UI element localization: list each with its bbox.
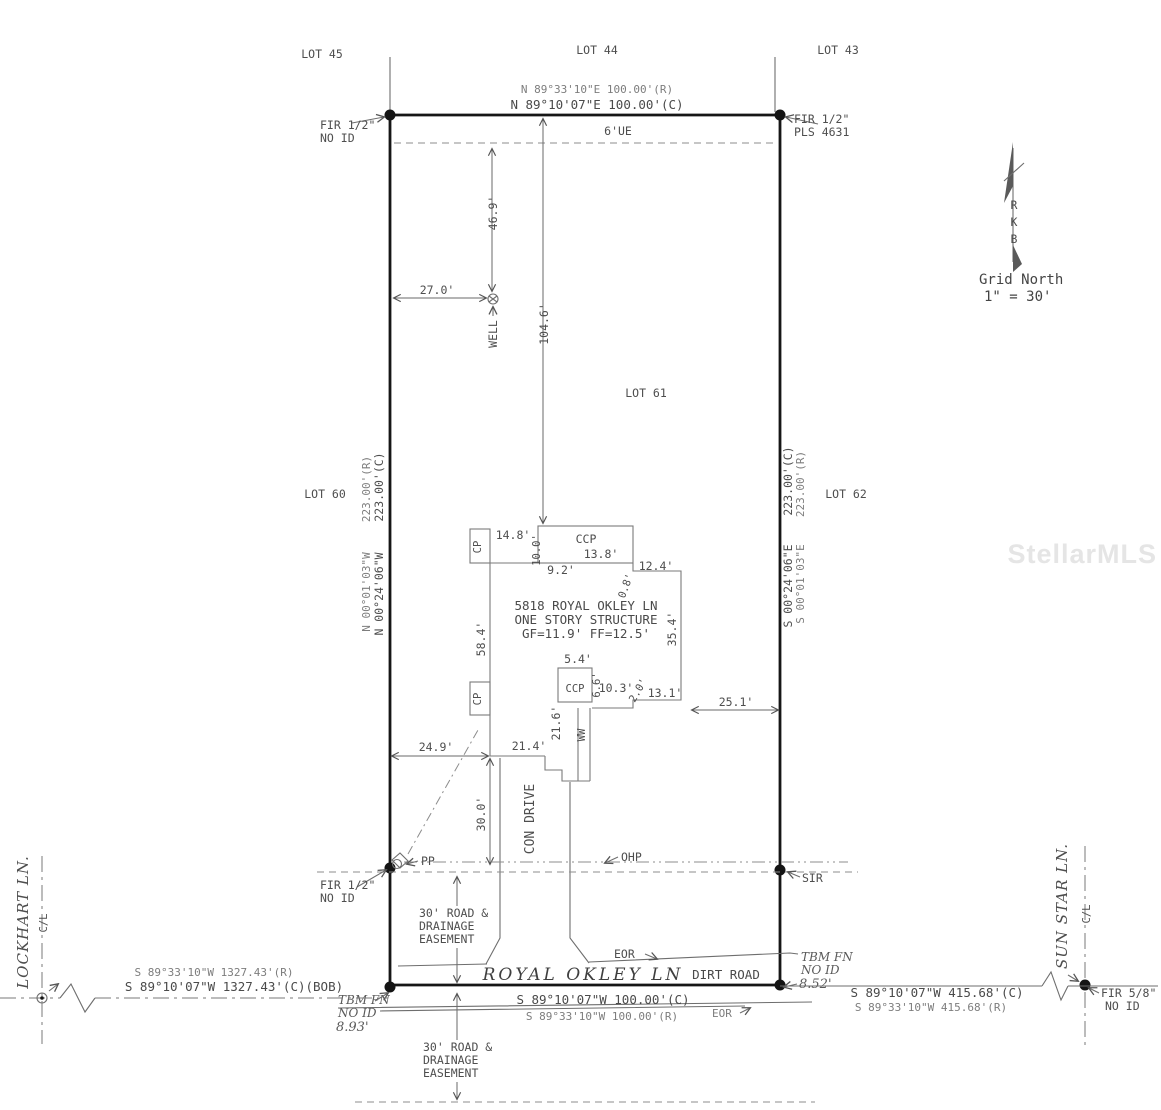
east-line-record-bearing: S 00°01'03"E [794,544,807,623]
easement1-line3: EASEMENT [419,932,474,946]
eor1-label: EOR [614,947,635,961]
ccp2-label: CCP [566,683,585,695]
dirt-road-label: DIRT ROAD [692,967,760,982]
se-monument-label: FIR 5/8" [1101,986,1156,1000]
survey-drawing: StellarMLS LOT 45 LOT 44 LOT 43 N 89°33'… [0,0,1161,1110]
eor2-label: EOR [712,1007,732,1020]
dim-21-4: 21.4' [512,739,547,753]
north-arrow: R K B Grid North 1" = 30' [979,142,1063,305]
ne-monument-id: PLS 4631 [794,125,849,139]
tbm-se-elev: 8.52' [799,977,832,992]
lot-60-label: LOT 60 [304,487,346,501]
watermark: StellarMLS [1007,539,1157,569]
north-line-record-bearing: N 89°33'10"E 100.00'(R) [521,83,673,96]
dim-13-1: 13.1' [648,686,683,700]
south-line-record-bearing: S 89°33'10"W 100.00'(R) [526,1010,678,1023]
lot-62-label: LOT 62 [825,487,867,501]
dim-12-4: 12.4' [639,559,674,573]
west-break-symbol [60,984,95,1012]
south-line-calc-bearing: S 89°10'07"W 100.00'(C) [516,992,689,1007]
dim-58-4: 58.4' [474,622,488,657]
cp2-label: CP [472,693,484,706]
survey-plat-page: StellarMLS LOT 45 LOT 44 LOT 43 N 89°33'… [0,0,1161,1110]
easement1-line2: DRAINAGE [419,919,474,933]
dim-27: 27.0' [420,283,455,297]
tbm-se-line1: TBM FN [801,950,853,964]
west-monument-arrow [49,984,58,991]
east-line-calc-bearing: S 00°24'06"E [781,544,795,627]
utility-easement-label: 6'UE [604,124,632,138]
sir-label: SIR [802,871,823,885]
easement1-line1: 30' ROAD & [419,906,488,920]
west-line-calc-dist: 223.00'(C) [372,452,386,521]
lockhart-cl-label: C/L [38,914,50,933]
north-line-calc-bearing: N 89°10'07"E 100.00'(C) [510,97,683,112]
dim-9-2: 9.2' [547,563,575,577]
east-road-record-bearing: S 89°33'10"W 415.68'(R) [855,1001,1007,1014]
dim-30-0: 30.0' [474,797,488,832]
surveyor-initial-3: B [1011,232,1018,246]
pp-label: PP [421,854,435,868]
nw-monument-label: FIR 1/2" [320,118,375,132]
well-label: WELL [486,320,500,348]
dim-5-4: 5.4' [564,652,592,666]
tbm-sw-elev: 8.93' [336,1020,369,1035]
west-road-record-bearing: S 89°33'10"W 1327.43'(R) [135,966,294,979]
east-line-calc-dist: 223.00'(C) [781,446,795,515]
dim-21-6: 21.6' [549,706,563,741]
tbm-sw-line2: NO ID [337,1006,377,1020]
dim-10-3: 10.3' [599,681,634,695]
tbm-se-line2: NO ID [800,963,840,977]
east-break-symbol [1042,972,1068,1000]
east-road-calc-bearing: S 89°10'07"W 415.68'(C) [850,985,1023,1000]
lot-44-label: LOT 44 [576,43,618,57]
dim-46-9: 46.9' [486,196,500,231]
ohp-label: OHP [621,850,642,864]
w-monument-id: NO ID [320,891,355,905]
dim-0-8: 0.8' [616,572,636,600]
dim-35-4: 35.4' [665,612,679,647]
w-monument-label: FIR 1/2" [320,878,375,892]
building-elevations: GF=11.9' FF=12.5' [522,626,650,641]
dim-14-8: 14.8' [496,528,531,542]
cp1-label: CP [472,541,484,554]
se-monument-id: NO ID [1105,999,1140,1013]
sun-star-ln-label: SUN STAR LN. [1053,843,1071,969]
west-road-calc-bearing: S 89°10'07"W 1327.43'(C)(BOB) [125,979,343,994]
surveyor-initial-1: R [1011,198,1018,212]
north-arrow-head [1004,142,1013,203]
dim-25-1: 25.1' [719,695,754,709]
east-monument-arrow [1068,975,1078,981]
dim-104-6: 104.6' [537,303,551,345]
dim-13-8: 13.8' [584,547,619,561]
sun-star-cl-label: C/L [1081,905,1093,924]
ccp-label: CCP [576,532,597,546]
east-line-record-dist: 223.00'(R) [794,451,807,517]
building-type: ONE STORY STRUCTURE [515,612,658,627]
scale-label: 1" = 30' [984,289,1051,305]
lot-45-label: LOT 45 [301,47,343,61]
surveyor-initial-2: K [1011,215,1018,229]
west-line-calc-bearing: N 00°24'06"W [372,552,386,635]
dim-24-9: 24.9' [419,740,454,754]
sir-leader [788,872,800,877]
eor1-leader [645,954,657,959]
con-drive-label: CON DRIVE [523,784,538,854]
lot-61-label: LOT 61 [625,386,667,400]
ww-label: WW [576,728,588,741]
easement2-line3: EASEMENT [423,1066,478,1080]
north-arrow-tail [1013,245,1022,272]
lockhart-ln-label: LOCKHART LN. [14,855,32,990]
easement2-line2: DRAINAGE [423,1053,478,1067]
easement2-line1: 30' ROAD & [423,1040,492,1054]
eor2-leader [740,1008,750,1013]
building-address: 5818 ROYAL OKLEY LN [515,598,658,613]
tbm-sw-line1: TBM FN [338,993,390,1007]
grid-north-label: Grid North [979,272,1063,288]
well-symbol [488,294,498,304]
se-monument-leader [1089,988,1099,993]
nw-monument-id: NO ID [320,131,355,145]
ne-monument-label: FIR 1/2" [794,112,849,126]
dim-10-0: 10.0' [531,534,543,566]
lot-43-label: LOT 43 [817,43,859,57]
royal-okley-ln-label: ROYAL OKLEY LN [482,965,684,985]
